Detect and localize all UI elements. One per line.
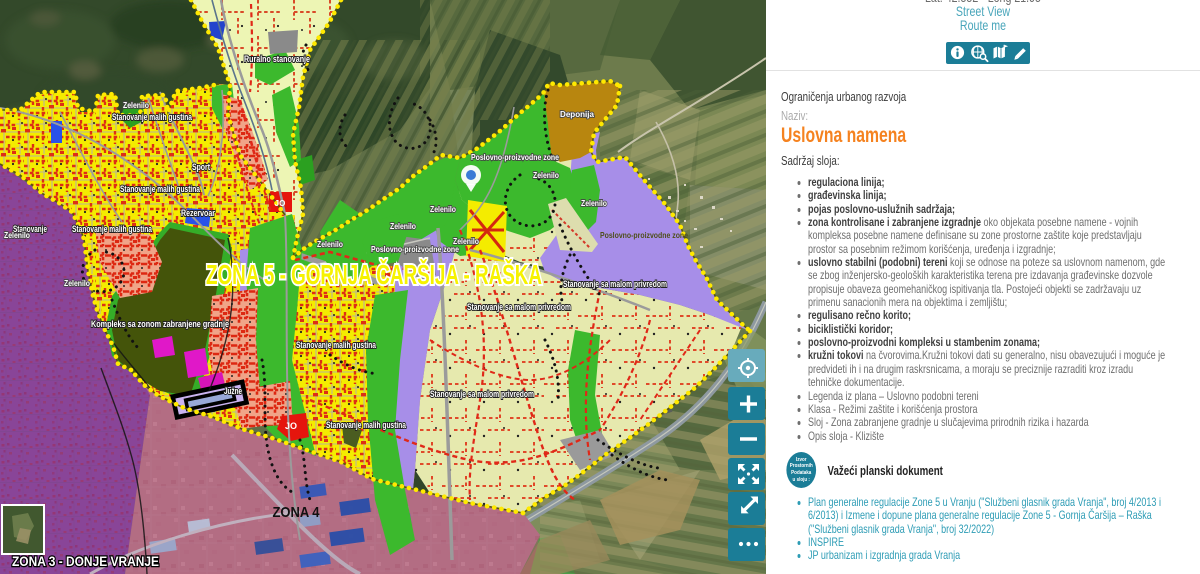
svg-text:Stanovanje sa malom privredom: Stanovanje sa malom privredom [563,279,667,289]
svg-text:Južne: Južne [224,386,242,396]
svg-text:ZONA 4: ZONA 4 [273,504,321,521]
svg-text:Stanovanje sa malom privredom: Stanovanje sa malom privredom [430,389,534,399]
svg-text:Ruralno stanovanje: Ruralno stanovanje [244,54,310,64]
svg-text:Zelenilo: Zelenilo [533,170,559,180]
svg-text:Stanovanje malih gustina: Stanovanje malih gustina [296,340,377,350]
svg-text:JO: JO [275,199,286,208]
svg-text:Deponija: Deponija [560,109,594,119]
svg-text:Poslovno-proizvodne zone: Poslovno-proizvodne zone [371,244,459,254]
svg-text:JO: JO [285,421,297,431]
svg-text:Zelenilo: Zelenilo [430,204,456,214]
svg-text:Stanovanje malih gustina: Stanovanje malih gustina [112,112,193,122]
svg-text:Stanovanje sa malom privredom: Stanovanje sa malom privredom [467,302,571,312]
svg-text:Zelenilo: Zelenilo [390,221,416,231]
svg-text:Zelenilo: Zelenilo [317,239,343,249]
svg-text:ZONA 3 - DONJE VRANJE: ZONA 3 - DONJE VRANJE [12,553,159,569]
svg-text:Rezervoar: Rezervoar [181,208,215,218]
svg-text:Poslovno-proizvodne zone: Poslovno-proizvodne zone [600,230,688,240]
svg-text:Zelenilo: Zelenilo [4,230,30,240]
svg-text:Zelenilo: Zelenilo [581,198,607,208]
svg-text:Sport: Sport [192,162,210,172]
svg-text:Stanovanje malih gustina: Stanovanje malih gustina [120,184,201,194]
svg-text:Stanovanje malih gustina: Stanovanje malih gustina [72,224,153,234]
svg-text:Zelenilo: Zelenilo [64,278,90,288]
svg-text:Kompleks sa zonom zabranjene g: Kompleks sa zonom zabranjene gradnje [91,319,229,329]
svg-text:Zelenilo: Zelenilo [123,100,149,110]
svg-text:ZONA 5 - GORNJA ČARŠIJA - RAŠK: ZONA 5 - GORNJA ČARŠIJA - RAŠKA [206,258,542,290]
svg-text:Poslovno-proizvodne zone: Poslovno-proizvodne zone [471,152,559,162]
svg-text:Stanovanje malih gustina: Stanovanje malih gustina [326,420,407,430]
